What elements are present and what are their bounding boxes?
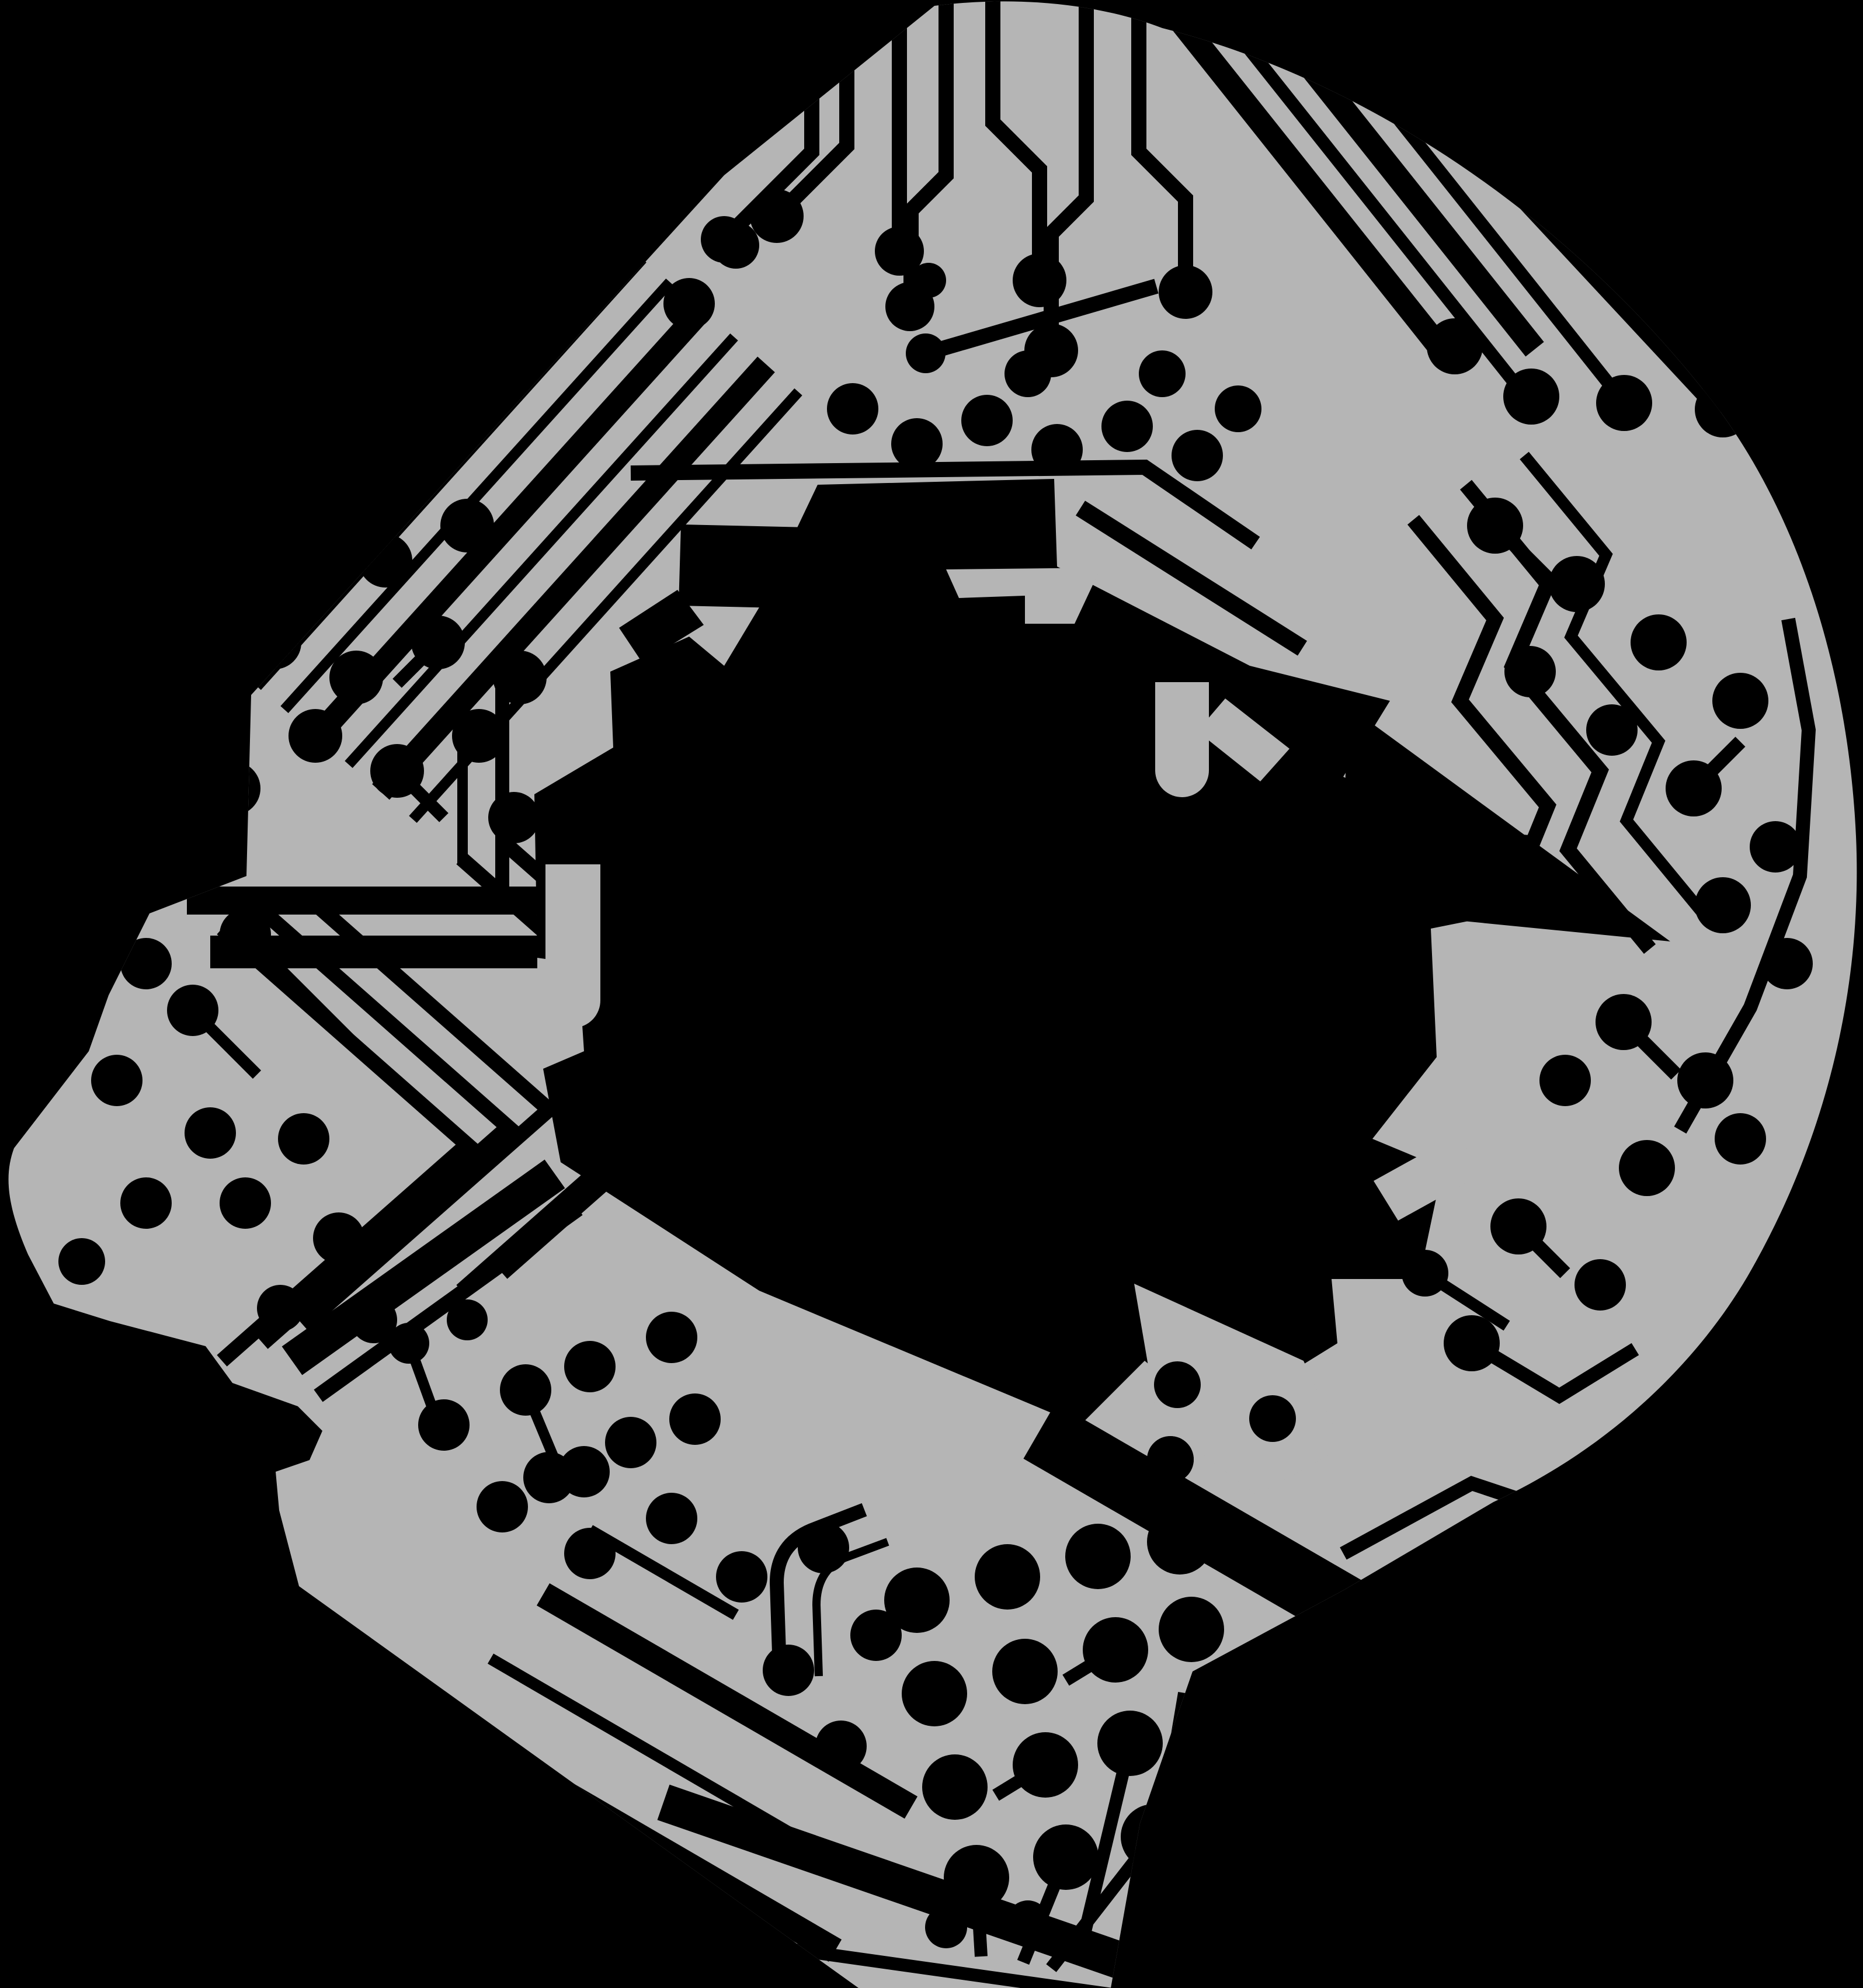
relief-slot bbox=[1155, 682, 1209, 797]
circuit-head-illustration: Black-and-grey illustration of a human h… bbox=[0, 0, 1863, 1988]
canvas: Black-and-grey illustration of a human h… bbox=[0, 0, 1863, 1988]
cutout-finger-1 bbox=[187, 887, 537, 915]
relief-step bbox=[534, 993, 571, 1042]
cutout-stub bbox=[679, 524, 808, 609]
cutout-finger-2 bbox=[210, 936, 537, 968]
